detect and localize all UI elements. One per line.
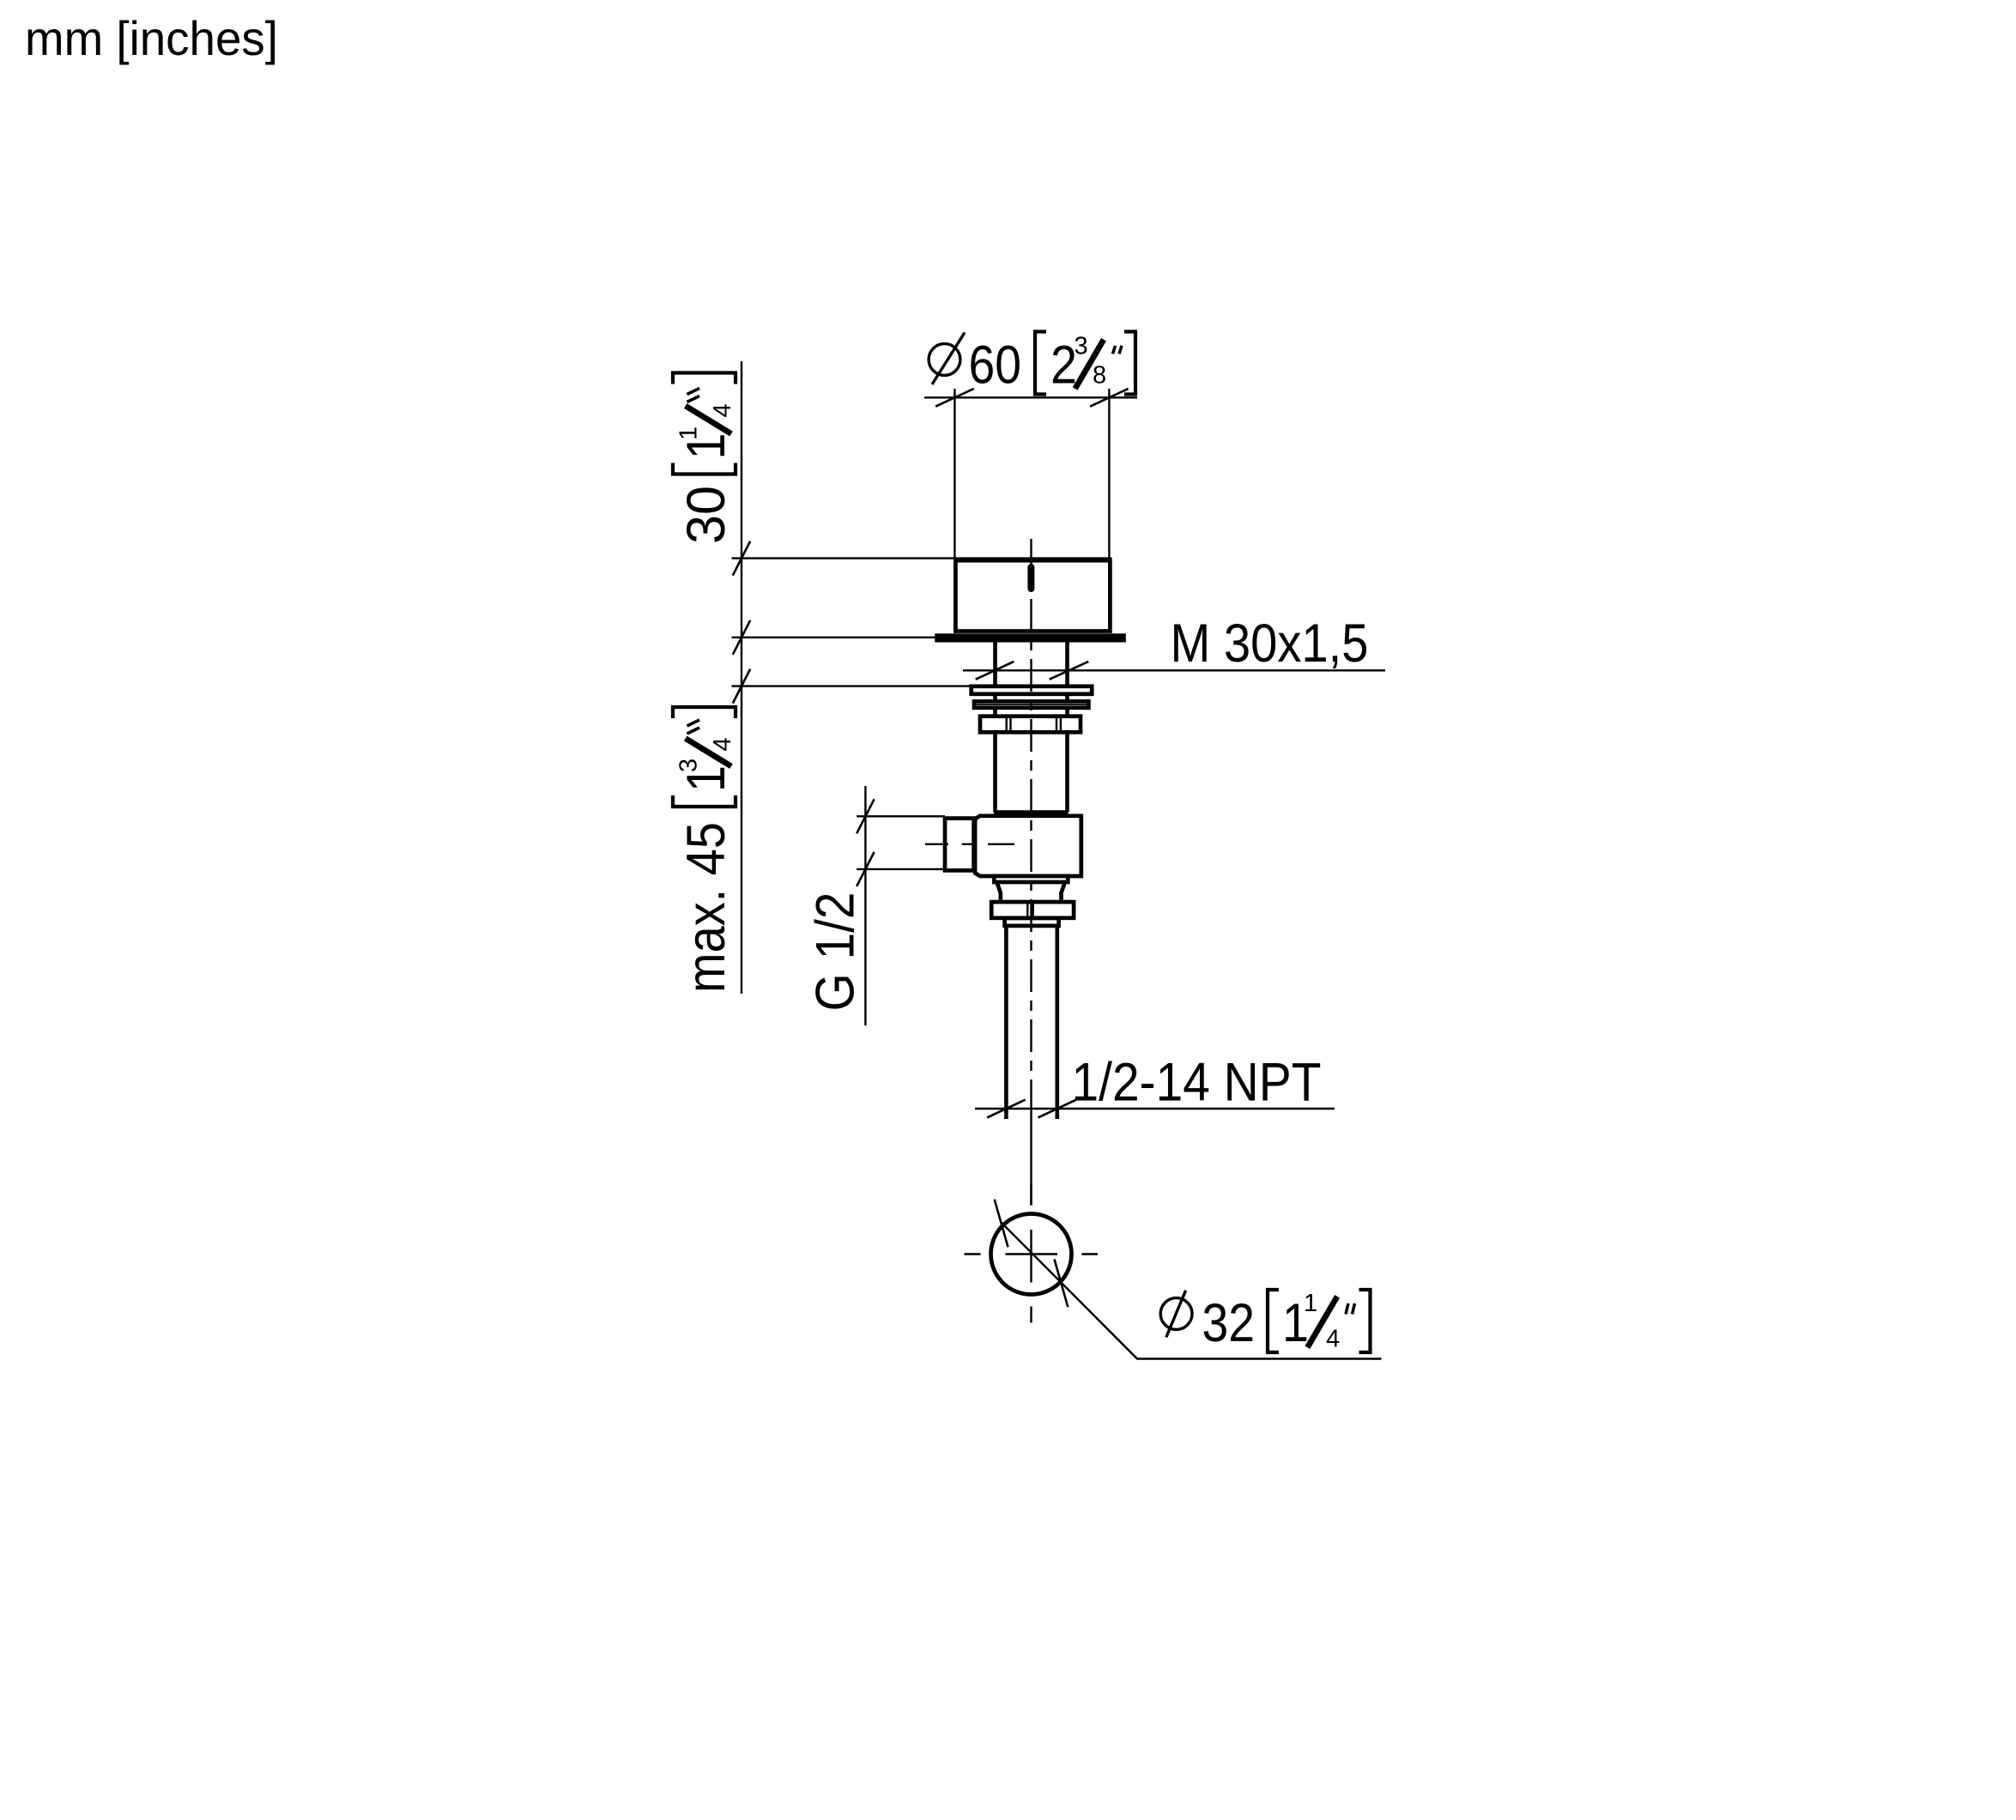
svg-text:G 1/2: G 1/2 — [806, 892, 866, 1012]
svg-text:3: 3 — [675, 759, 703, 772]
svg-text:32: 32 — [1202, 1293, 1256, 1353]
svg-text:4: 4 — [1326, 1325, 1340, 1352]
svg-text:1/2-14 NPT: 1/2-14 NPT — [1072, 1053, 1322, 1113]
svg-text:3: 3 — [1075, 333, 1088, 360]
svg-text:M 30x1,5: M 30x1,5 — [1171, 614, 1369, 674]
svg-text:60: 60 — [969, 336, 1022, 396]
svg-text:8: 8 — [1093, 362, 1106, 390]
svg-text:4: 4 — [709, 403, 736, 417]
svg-text:1: 1 — [1304, 1290, 1317, 1317]
svg-text:1: 1 — [675, 426, 703, 440]
svg-text:30: 30 — [676, 486, 736, 544]
svg-text:4: 4 — [709, 737, 736, 751]
svg-text:max. 45: max. 45 — [676, 822, 736, 993]
svg-text:mm [inches]: mm [inches] — [25, 11, 278, 65]
svg-text:2: 2 — [1050, 336, 1077, 396]
